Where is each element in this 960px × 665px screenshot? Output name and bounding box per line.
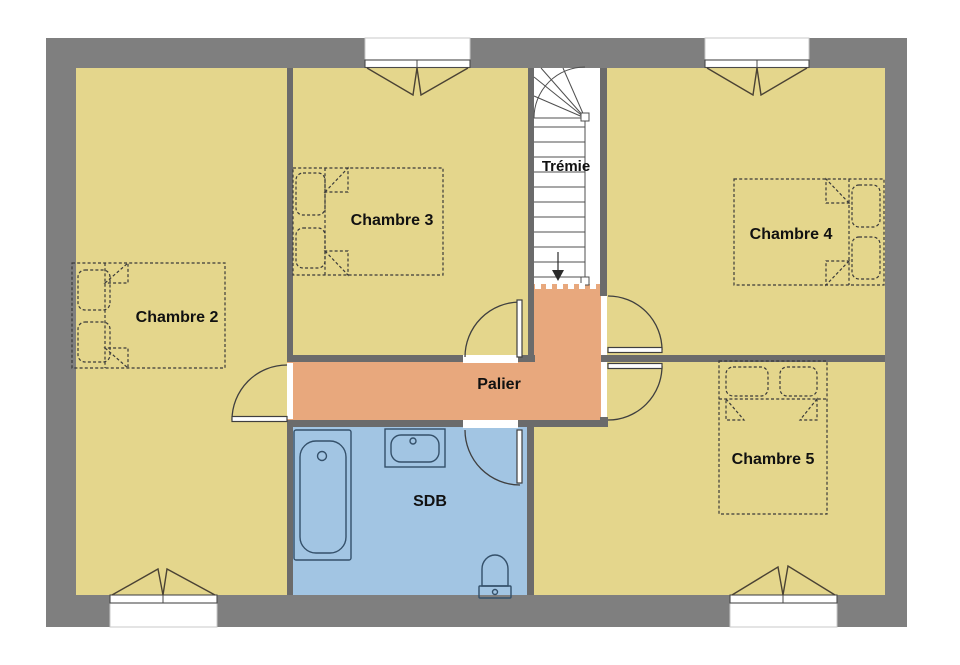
room-floors bbox=[76, 68, 885, 595]
stair-newel-post bbox=[581, 113, 589, 121]
door-leaf bbox=[608, 348, 662, 353]
wall-stair-left bbox=[528, 68, 534, 355]
door-leaf bbox=[608, 364, 662, 369]
door-leaf bbox=[517, 430, 522, 483]
room-chambre4-floor bbox=[601, 68, 885, 362]
wall-sdb-ch5 bbox=[527, 427, 534, 595]
label-chambre4: Chambre 4 bbox=[750, 226, 833, 243]
opening-chambre3 bbox=[463, 355, 518, 363]
label-chambre3: Chambre 3 bbox=[351, 212, 434, 229]
outer-wall-left bbox=[46, 38, 76, 627]
floor-plan-page: Chambre 2 Chambre 3 Chambre 4 Chambre 5 … bbox=[0, 0, 960, 665]
window-sill bbox=[110, 603, 217, 627]
wall-stair-right bbox=[600, 68, 607, 296]
opening-chambre2 bbox=[287, 363, 293, 419]
opening-chambre5 bbox=[601, 362, 607, 417]
label-palier: Palier bbox=[477, 376, 521, 393]
wall-palier-ch5 bbox=[535, 420, 608, 427]
room-chambre2-floor bbox=[76, 68, 293, 595]
floor-plan-drawing: Chambre 2 Chambre 3 Chambre 4 Chambre 5 … bbox=[0, 0, 960, 665]
window-sill bbox=[705, 38, 809, 60]
room-palier-floor-stub bbox=[534, 283, 601, 373]
room-sdb-floor bbox=[293, 423, 527, 595]
wall-ch2-ch3 bbox=[287, 68, 293, 362]
door-leaf bbox=[517, 300, 522, 357]
window-sill bbox=[730, 603, 837, 627]
door-leaf bbox=[232, 417, 287, 422]
outer-wall-right bbox=[885, 38, 907, 627]
opening-sdb bbox=[463, 420, 518, 428]
window-sill bbox=[365, 38, 470, 60]
label-chambre2: Chambre 2 bbox=[136, 309, 219, 326]
opening-chambre4 bbox=[601, 296, 607, 355]
label-sdb: SDB bbox=[413, 493, 447, 510]
wall-corner-block bbox=[600, 417, 608, 427]
wall-ch4-ch5 bbox=[601, 355, 885, 362]
label-chambre5: Chambre 5 bbox=[732, 451, 815, 468]
wall-ch2-sdb bbox=[287, 420, 293, 595]
label-tremie: Trémie bbox=[542, 158, 590, 175]
